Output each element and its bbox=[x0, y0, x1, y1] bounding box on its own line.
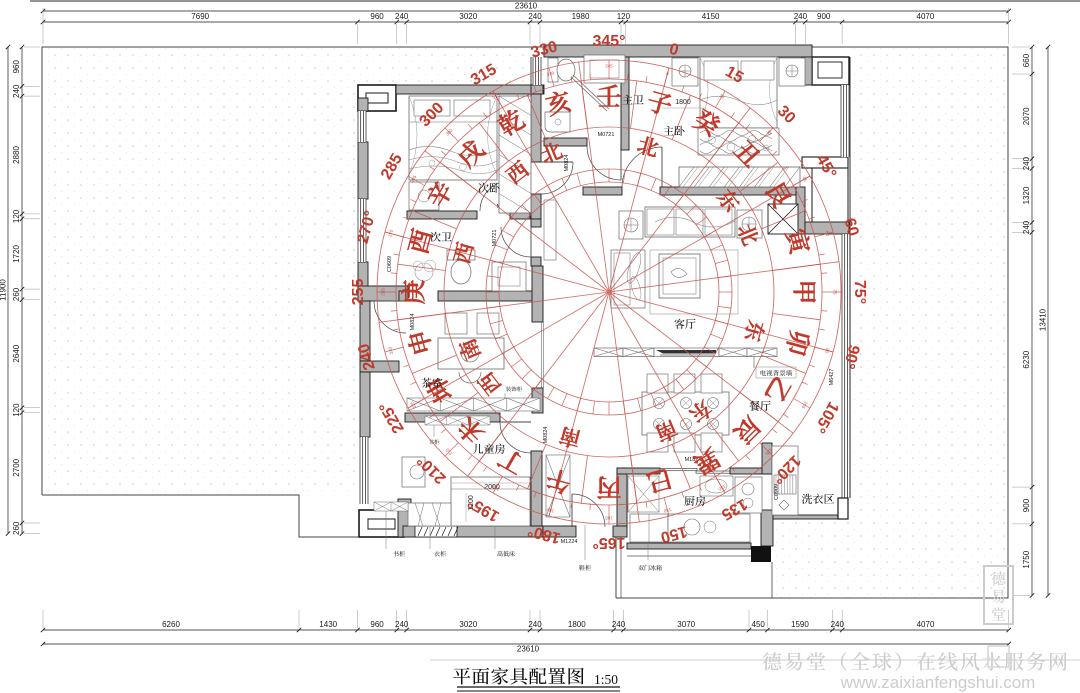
svg-text:240: 240 bbox=[794, 12, 808, 21]
svg-text:www.zaixianfengshui.com: www.zaixianfengshui.com bbox=[840, 673, 1036, 692]
svg-text:345°: 345° bbox=[592, 33, 625, 50]
svg-text:客厅: 客厅 bbox=[674, 316, 696, 332]
svg-text:餐厅: 餐厅 bbox=[749, 398, 771, 414]
svg-text:240: 240 bbox=[395, 620, 409, 629]
svg-text:4070: 4070 bbox=[917, 620, 935, 629]
svg-text:1:50: 1:50 bbox=[594, 672, 618, 687]
svg-text:衣柜: 衣柜 bbox=[434, 549, 446, 558]
svg-text:120: 120 bbox=[12, 403, 21, 417]
svg-text:M1224: M1224 bbox=[561, 539, 578, 545]
svg-text:茶室: 茶室 bbox=[421, 375, 443, 391]
svg-text:345: 345 bbox=[605, 64, 613, 69]
svg-text:2640: 2640 bbox=[12, 344, 21, 362]
svg-text:鞋柜: 鞋柜 bbox=[579, 563, 591, 572]
svg-text:装饰柜: 装饰柜 bbox=[506, 385, 523, 393]
svg-text:13410: 13410 bbox=[1039, 308, 1048, 331]
svg-text:M0824: M0824 bbox=[543, 427, 549, 444]
svg-text:厨房: 厨房 bbox=[684, 493, 706, 509]
svg-text:900: 900 bbox=[817, 12, 831, 21]
svg-text:75: 75 bbox=[833, 289, 838, 295]
svg-text:240: 240 bbox=[395, 12, 409, 21]
svg-text:壬: 壬 bbox=[596, 78, 621, 114]
svg-text:120: 120 bbox=[617, 12, 631, 21]
svg-text:次卫: 次卫 bbox=[430, 229, 452, 245]
svg-text:960: 960 bbox=[12, 59, 21, 73]
svg-text:C0609: C0609 bbox=[387, 256, 393, 272]
svg-text:堂: 堂 bbox=[991, 604, 1006, 625]
svg-text:450: 450 bbox=[752, 620, 766, 629]
svg-text:255: 255 bbox=[350, 279, 367, 306]
svg-text:660: 660 bbox=[1022, 53, 1031, 67]
svg-text:M0824: M0824 bbox=[410, 314, 416, 331]
svg-text:11900: 11900 bbox=[0, 279, 8, 301]
svg-text:240: 240 bbox=[1022, 156, 1031, 170]
svg-text:M6427: M6427 bbox=[829, 369, 835, 386]
svg-text:书柜: 书柜 bbox=[393, 549, 405, 558]
svg-text:洗衣区: 洗衣区 bbox=[802, 491, 835, 507]
svg-text:M0721: M0721 bbox=[598, 132, 615, 138]
svg-text:900: 900 bbox=[1022, 498, 1031, 512]
svg-text:主卧: 主卧 bbox=[663, 123, 685, 139]
svg-text:6230: 6230 bbox=[1022, 350, 1031, 368]
svg-text:1750: 1750 bbox=[1022, 550, 1031, 568]
svg-text:960: 960 bbox=[370, 620, 384, 629]
svg-text:165°: 165° bbox=[592, 534, 625, 551]
svg-text:庚: 庚 bbox=[395, 279, 431, 304]
svg-text:4150: 4150 bbox=[702, 12, 720, 21]
svg-text:1720: 1720 bbox=[12, 245, 21, 263]
svg-text:主卫: 主卫 bbox=[622, 92, 644, 108]
svg-text:1800: 1800 bbox=[568, 620, 586, 629]
svg-text:23610: 23610 bbox=[517, 645, 540, 654]
svg-text:双门冰箱: 双门冰箱 bbox=[638, 563, 662, 572]
svg-text:960: 960 bbox=[370, 12, 384, 21]
svg-text:260: 260 bbox=[12, 521, 21, 535]
svg-text:120: 120 bbox=[12, 209, 21, 223]
svg-text:260: 260 bbox=[12, 287, 21, 301]
svg-text:4070: 4070 bbox=[917, 12, 935, 21]
svg-text:75°: 75° bbox=[851, 280, 868, 304]
svg-text:M0721: M0721 bbox=[492, 230, 498, 247]
svg-text:240: 240 bbox=[528, 620, 542, 629]
svg-text:3020: 3020 bbox=[459, 620, 477, 629]
svg-text:1980: 1980 bbox=[572, 12, 590, 21]
svg-text:1590: 1590 bbox=[791, 620, 809, 629]
svg-text:255: 255 bbox=[381, 288, 386, 296]
svg-text:240: 240 bbox=[831, 620, 845, 629]
svg-text:2070: 2070 bbox=[1022, 107, 1031, 125]
svg-text:高低床: 高低床 bbox=[497, 549, 515, 558]
svg-text:1320: 1320 bbox=[1022, 186, 1031, 204]
svg-text:240: 240 bbox=[1022, 220, 1031, 234]
svg-text:儿童房: 儿童房 bbox=[473, 441, 506, 457]
svg-text:240: 240 bbox=[528, 12, 542, 21]
svg-text:7690: 7690 bbox=[191, 12, 209, 21]
svg-text:240: 240 bbox=[12, 84, 21, 98]
svg-text:3020: 3020 bbox=[459, 12, 477, 21]
svg-text:甲: 甲 bbox=[788, 279, 824, 304]
svg-text:1430: 1430 bbox=[319, 620, 337, 629]
svg-text:平面家具配置图: 平面家具配置图 bbox=[452, 663, 585, 689]
svg-text:165: 165 bbox=[605, 516, 613, 521]
svg-text:6260: 6260 bbox=[162, 620, 180, 629]
svg-text:23610: 23610 bbox=[515, 2, 538, 11]
svg-text:C0909: C0909 bbox=[774, 484, 780, 500]
svg-text:240: 240 bbox=[612, 620, 626, 629]
svg-text:2700: 2700 bbox=[12, 458, 21, 476]
svg-text:2880: 2880 bbox=[12, 146, 21, 164]
svg-text:德易堂（全球）在线风水服务网: 德易堂（全球）在线风水服务网 bbox=[762, 646, 1070, 675]
svg-text:丙: 丙 bbox=[596, 471, 621, 507]
svg-text:3070: 3070 bbox=[677, 620, 695, 629]
svg-text:次卧: 次卧 bbox=[478, 180, 500, 196]
